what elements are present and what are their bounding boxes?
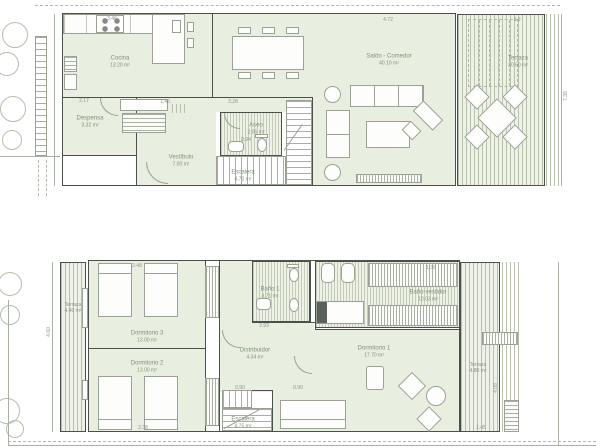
- dimension: 1.45: [476, 425, 486, 431]
- dimension: 3.9: [514, 17, 521, 23]
- bench-seat: [122, 113, 166, 133]
- room-label-escalera: Escalera 4.70 m²: [231, 169, 254, 182]
- dimension-chain-right: [561, 14, 562, 186]
- dimension: 2.17: [79, 98, 89, 104]
- stool: [187, 38, 194, 48]
- toilet-bowl: [257, 138, 267, 152]
- pergola-slat: [499, 20, 500, 86]
- dining-chair: [286, 27, 299, 34]
- dimension: 3.28: [228, 99, 238, 105]
- floor-plan-sheet: Cocina 13.20 m² Despensa 3.32 m² Vestíbu…: [0, 0, 600, 448]
- louver-block: [504, 400, 519, 432]
- room-label-terraza: Terraza 20.60 m²: [508, 55, 528, 68]
- dimension: 0.94: [241, 137, 251, 143]
- bed: [144, 376, 178, 430]
- washbasin: [341, 263, 355, 283]
- room-label-dormitorio2: Dormitorio 2 13.00 m²: [131, 360, 164, 373]
- room-label-bano1: Baño 1 3.71 m²: [260, 286, 279, 299]
- dimension: 1.46: [160, 99, 170, 105]
- site-dash-line: [38, 160, 39, 196]
- stair-flight-upper: [222, 390, 252, 408]
- kitchen-tall-unit: [64, 56, 77, 72]
- site-boundary-left: [8, 300, 9, 446]
- dining-chair: [238, 27, 251, 34]
- wardrobe: [205, 378, 219, 426]
- room-name: Distribuidor: [240, 347, 270, 353]
- wall: [315, 329, 460, 330]
- tree: [2, 130, 22, 150]
- room-area: 4.40 m²: [65, 308, 82, 314]
- dining-chair: [262, 27, 275, 34]
- room-name: Baño 1: [260, 286, 279, 292]
- tree: [0, 52, 19, 76]
- stool: [187, 22, 194, 32]
- wardrobe: [205, 266, 219, 318]
- side-louver-strip: [35, 36, 47, 156]
- wall: [310, 261, 311, 322]
- wardrobe: [368, 305, 458, 326]
- pergola-slat: [509, 20, 510, 86]
- room-label-despensa: Despensa 3.32 m²: [76, 115, 103, 128]
- room-area: 17.70 m²: [358, 353, 391, 359]
- wall: [89, 348, 205, 349]
- dimension: 2.48: [132, 263, 142, 269]
- dimension: 4.60: [46, 327, 52, 337]
- bidet: [289, 298, 299, 312]
- dimension-chain-left: [52, 262, 53, 432]
- toilet-bowl: [289, 268, 299, 282]
- dimension: 4.08: [493, 383, 499, 393]
- room-area: 20.60 m²: [508, 63, 528, 69]
- room-name: Dormitorio 1: [358, 345, 391, 351]
- ground-floor-plan: Cocina 13.20 m² Despensa 3.32 m² Vestíbu…: [0, 0, 600, 230]
- room-label-salon: Salón - Comedor 40.10 m²: [366, 53, 411, 66]
- wall: [312, 97, 313, 185]
- dining-table: [232, 36, 304, 70]
- room-area: 2.05 m²: [248, 130, 265, 136]
- room-name: Dormitorio 3: [131, 330, 164, 336]
- room-name: Cocina: [111, 55, 130, 61]
- radiator: [172, 104, 188, 113]
- bathtub-step: [317, 302, 327, 323]
- dimension: 0.90: [293, 385, 303, 391]
- dimension: 2.38: [138, 425, 148, 431]
- tree: [0, 272, 22, 296]
- coffee-table: [366, 121, 410, 148]
- armchair: [366, 366, 384, 390]
- wall: [212, 14, 213, 97]
- dining-chair: [286, 72, 299, 79]
- room-area: 13.20 m²: [110, 63, 130, 69]
- tree: [0, 96, 26, 122]
- island-sink: [172, 20, 181, 33]
- room-area: 13.00 m²: [131, 338, 164, 344]
- dimension: 7.38: [563, 91, 569, 101]
- bed: [144, 263, 178, 317]
- room-label-terraza-der: Terraza 4.80 m²: [470, 362, 487, 374]
- room-label-bano-vestidor: Baño-vestidor 10.03 m²: [409, 289, 446, 302]
- room-label-aseo: Aseo 2.05 m²: [248, 122, 265, 135]
- dimension: 3.46: [107, 16, 117, 22]
- pergola-slat: [489, 20, 490, 86]
- pergola-slat: [479, 20, 480, 86]
- room-label-dormitorio1: Dormitorio 1 17.70 m²: [358, 345, 391, 358]
- room-name: Vestíbulo: [169, 154, 194, 160]
- kitchen-tall-unit: [64, 74, 77, 90]
- ground-dash-line: [8, 441, 596, 442]
- sofa-two-seat: [326, 110, 350, 158]
- dimension: 0.90: [235, 385, 245, 391]
- washbasin: [321, 263, 335, 283]
- room-name: Escalera: [231, 169, 254, 175]
- tv-console: [356, 174, 422, 183]
- room-name: Aseo: [249, 122, 263, 128]
- armchair-round: [324, 86, 341, 103]
- site-boundary-right: [558, 262, 559, 445]
- room-name: Salón - Comedor: [366, 53, 411, 59]
- side-table-round: [426, 386, 446, 406]
- room-name: Dormitorio 2: [131, 360, 164, 366]
- pergola: [468, 19, 518, 87]
- wall: [219, 261, 220, 431]
- room-area: 4.34 m²: [240, 355, 270, 361]
- site-boundary-bottom: [8, 445, 596, 446]
- dining-chair: [238, 72, 251, 79]
- room-area: 4.70 m²: [231, 177, 254, 183]
- room-area: 40.10 m²: [366, 61, 411, 67]
- bed-double: [280, 400, 346, 429]
- washbasin: [256, 298, 271, 310]
- room-label-dormitorio3: Dormitorio 3 13.00 m²: [131, 330, 164, 343]
- wardrobe: [368, 263, 458, 287]
- room-area: 10.03 m²: [409, 297, 446, 303]
- room-label-distribuidor: Distribuidor 4.34 m²: [240, 347, 270, 360]
- tree: [0, 305, 20, 325]
- site-line: [0, 156, 60, 157]
- dimension-chain-left: [54, 14, 55, 186]
- tree: [2, 22, 28, 48]
- bed: [98, 376, 132, 430]
- armchair-round: [324, 164, 341, 181]
- wall: [272, 390, 273, 431]
- room-area: 4.75 m²: [231, 424, 254, 430]
- room-label-terraza-izq: Terraza 4.40 m²: [65, 302, 82, 314]
- room-area: 3.32 m²: [76, 123, 103, 129]
- roof-overhang-line: [35, 5, 560, 6]
- dimension: 3.93: [259, 323, 269, 329]
- site-dash-line: [46, 160, 47, 196]
- room-area: 3.71 m²: [260, 294, 279, 300]
- room-area: 4.80 m²: [470, 368, 487, 374]
- room-label-vestibulo: Vestíbulo 7.00 m²: [169, 154, 194, 167]
- upper-floor-plan: Terraza 4.40 m² Dormitorio 3 13.00 m² Do…: [0, 250, 600, 448]
- sofa-three-seat: [350, 85, 424, 107]
- boundary-fence: [546, 14, 559, 186]
- room-area: 7.00 m²: [169, 162, 194, 168]
- dining-chair: [262, 72, 275, 79]
- room-label-cocina: Cocina 13.20 m²: [110, 55, 130, 68]
- room-name: Baño-vestidor: [409, 289, 446, 295]
- dimension: 1.36: [426, 265, 436, 271]
- bed: [98, 263, 132, 317]
- terrace-right-deck: [460, 262, 500, 432]
- dimension: 4.72: [383, 17, 393, 23]
- room-label-escalera: Escalera 4.75 m²: [231, 416, 254, 429]
- room-name: Escalera: [231, 416, 254, 422]
- room-area: 13.00 m²: [131, 368, 164, 374]
- room-name: Despensa: [76, 115, 103, 121]
- planter: [482, 332, 518, 345]
- wall: [63, 155, 136, 156]
- room-name: Terraza: [508, 55, 528, 61]
